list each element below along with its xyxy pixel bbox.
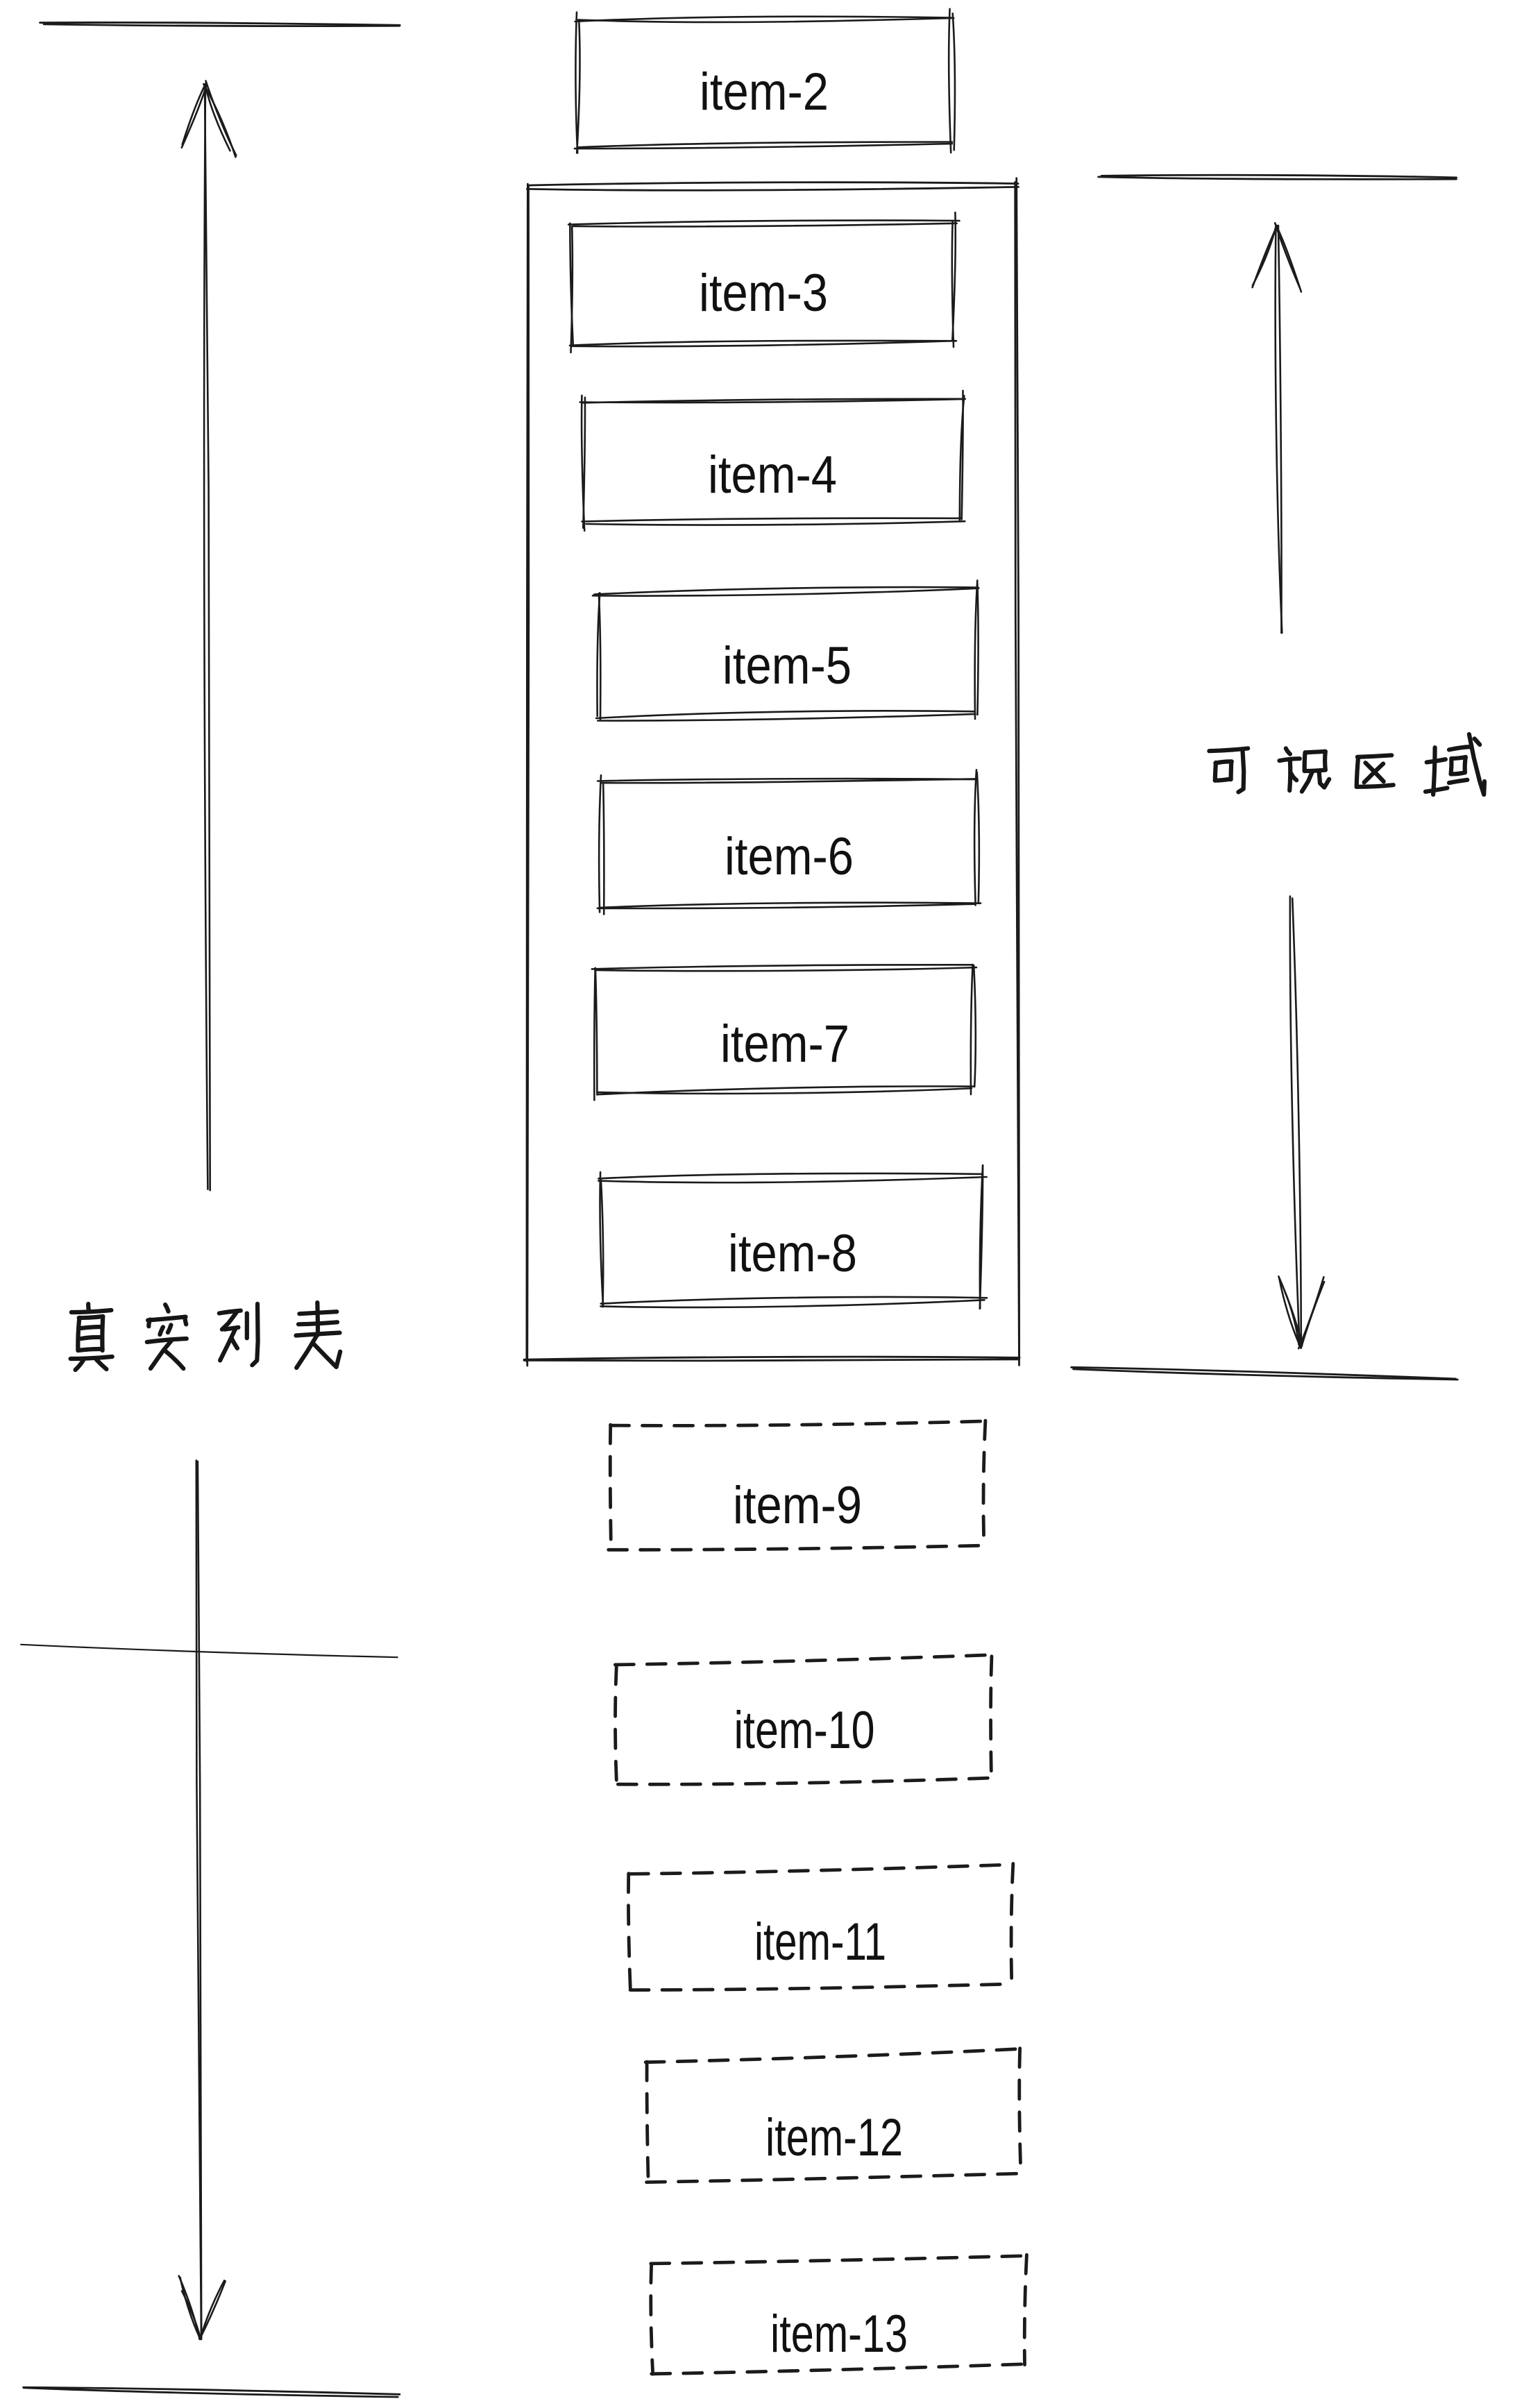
svg-text:item-10: item-10 (734, 1701, 875, 1760)
svg-text:item-2: item-2 (700, 62, 829, 121)
svg-text:item-5: item-5 (722, 636, 852, 695)
svg-text:item-8: item-8 (728, 1224, 857, 1283)
svg-text:item-9: item-9 (733, 1476, 862, 1535)
svg-text:item-13: item-13 (770, 2305, 908, 2364)
svg-text:item-3: item-3 (699, 264, 828, 323)
svg-text:item-6: item-6 (725, 827, 854, 886)
svg-text:item-7: item-7 (720, 1015, 849, 1074)
svg-text:item-12: item-12 (765, 2108, 903, 2167)
svg-text:item-4: item-4 (708, 446, 837, 505)
svg-text:item-11: item-11 (754, 1913, 886, 1972)
